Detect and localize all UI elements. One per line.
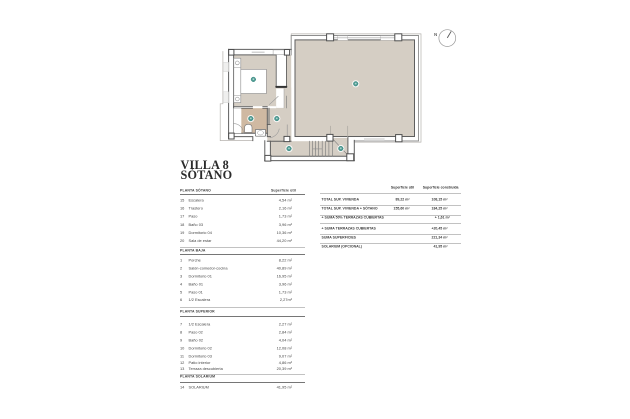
svg-text:N: N xyxy=(434,32,437,37)
